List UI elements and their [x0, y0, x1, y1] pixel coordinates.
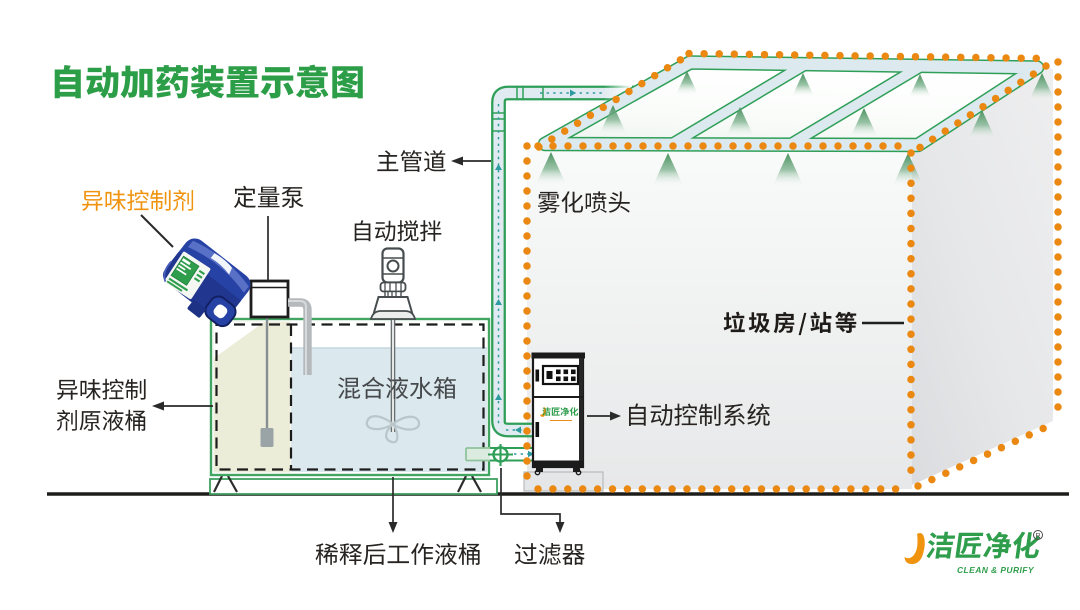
svg-text:R: R	[1035, 533, 1040, 540]
svg-text:CLEAN & PURIFY: CLEAN & PURIFY	[957, 565, 1035, 575]
